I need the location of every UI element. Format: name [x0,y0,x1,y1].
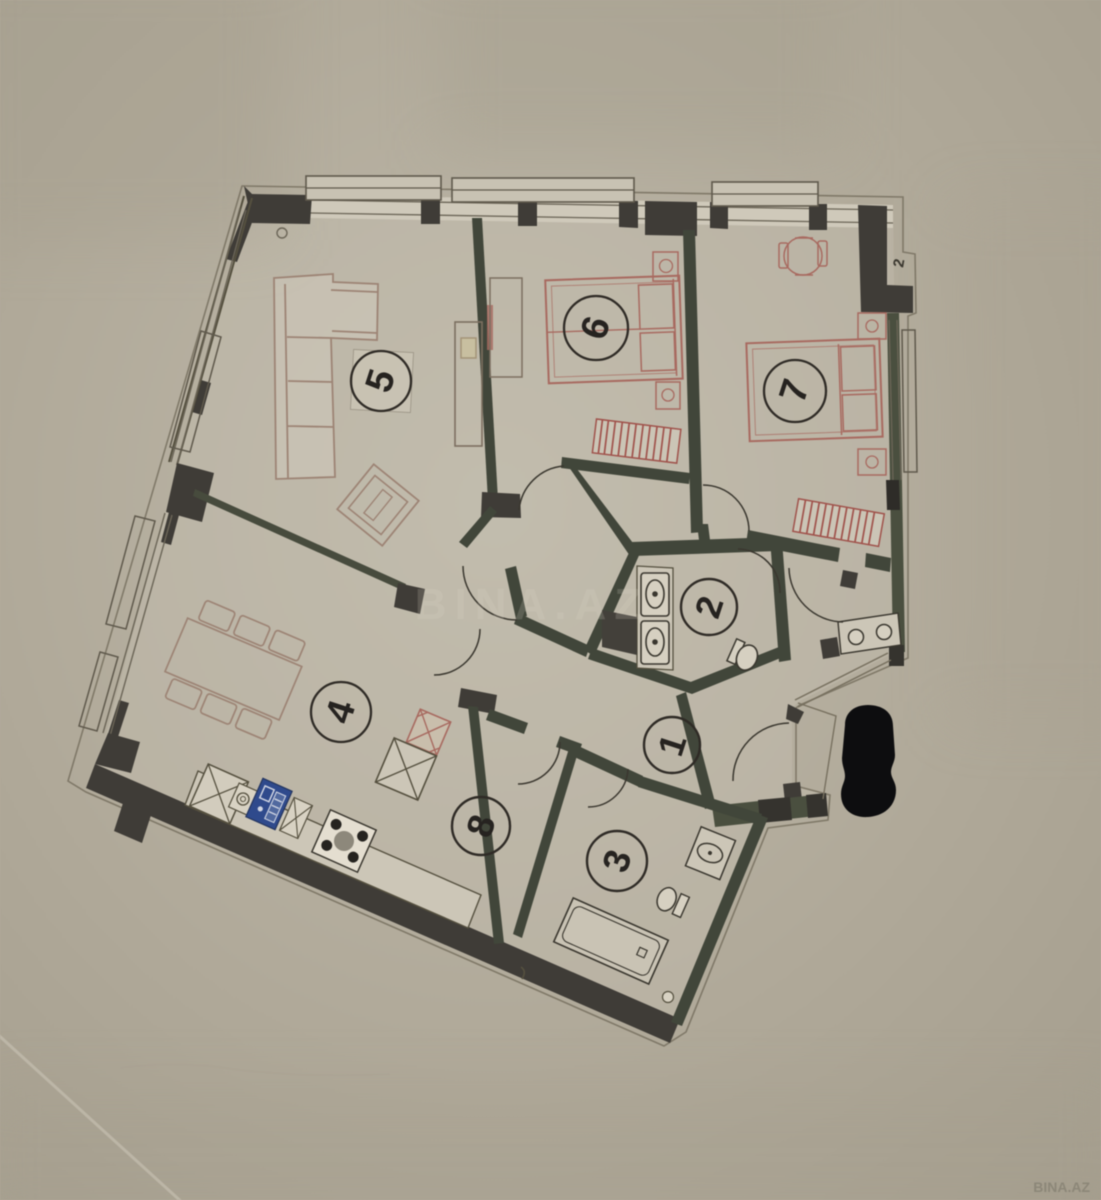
svg-text:BINA.AZ: BINA.AZ [1033,1179,1090,1195]
svg-text:BINA.AZ: BINA.AZ [415,580,649,629]
